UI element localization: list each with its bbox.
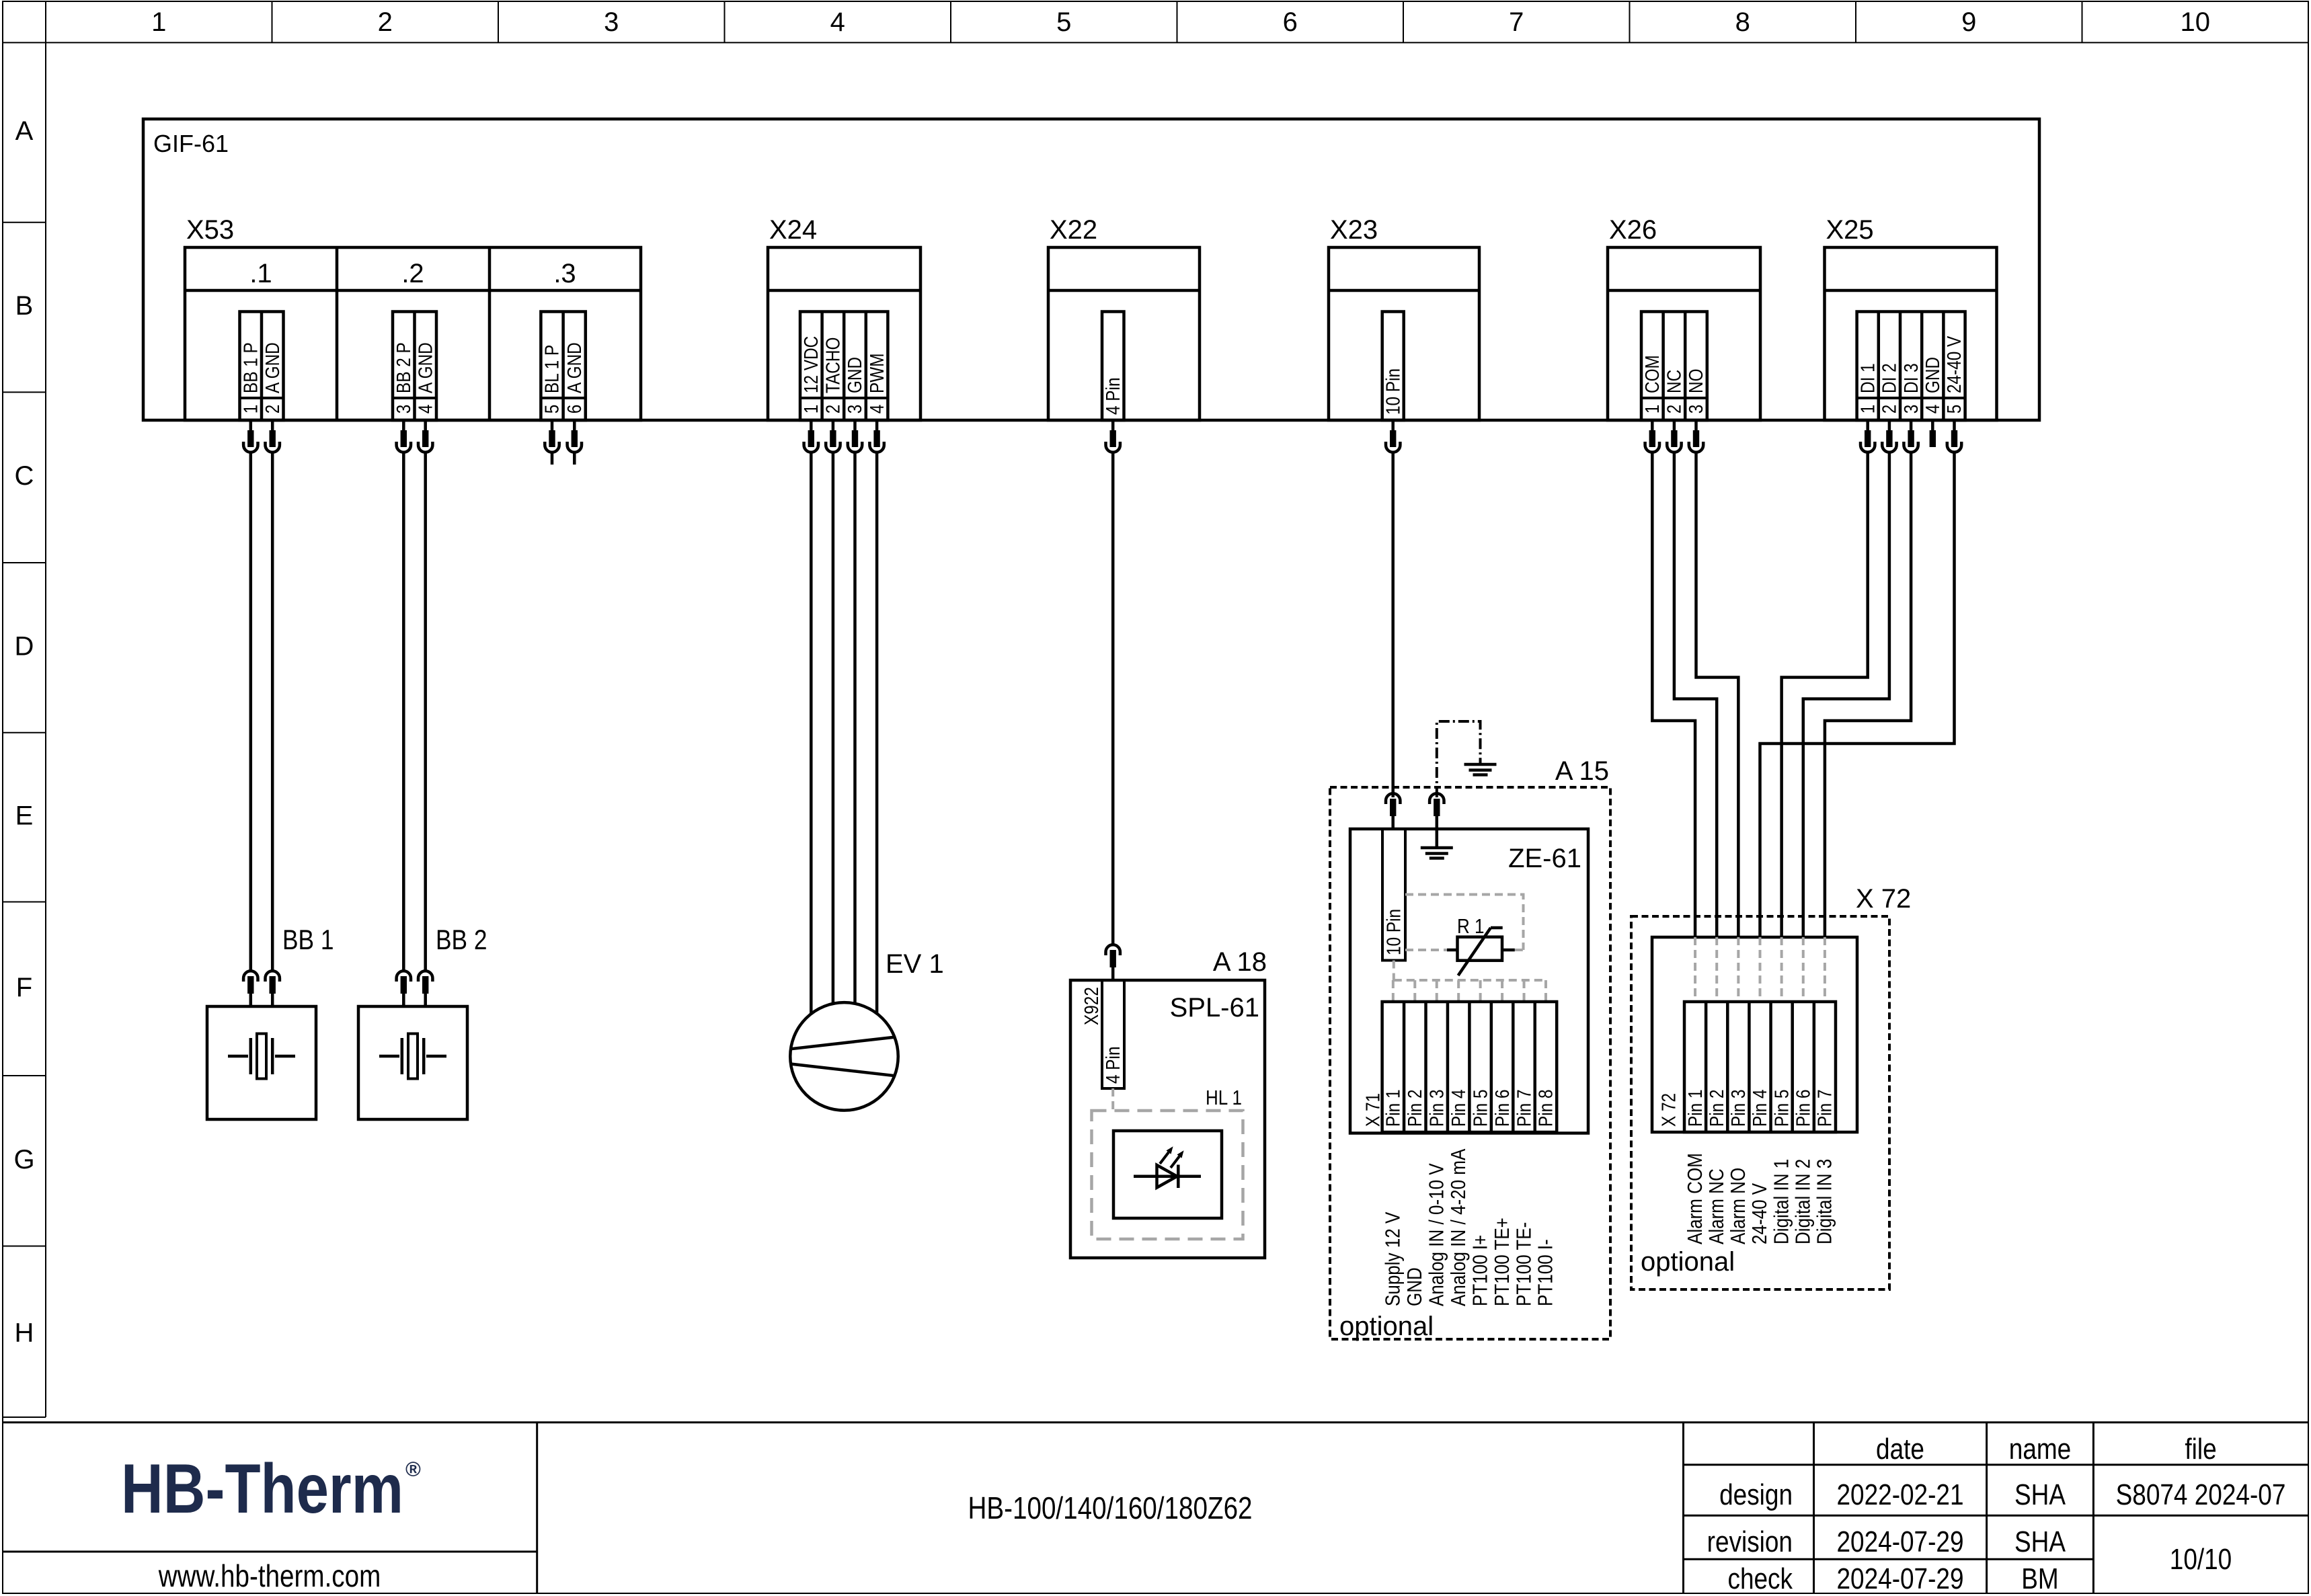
- svg-text:10: 10: [2181, 7, 2211, 37]
- svg-text:Digital IN 1: Digital IN 1: [1770, 1159, 1793, 1244]
- svg-text:Pin 4: Pin 4: [1448, 1089, 1469, 1127]
- svg-text:D: D: [15, 631, 34, 661]
- svg-text:1: 1: [800, 405, 822, 414]
- svg-text:Pin 5: Pin 5: [1770, 1089, 1792, 1127]
- svg-text:4: 4: [415, 405, 436, 414]
- svg-text:1: 1: [151, 7, 166, 37]
- svg-text:BB 2: BB 2: [436, 924, 487, 956]
- svg-text:Pin 4: Pin 4: [1749, 1089, 1770, 1127]
- svg-text:H: H: [15, 1318, 34, 1348]
- svg-text:10/10: 10/10: [2170, 1542, 2232, 1576]
- svg-text:GND: GND: [1403, 1267, 1427, 1306]
- svg-text:3: 3: [604, 7, 619, 37]
- svg-text:24-40 V: 24-40 V: [1748, 1183, 1772, 1244]
- svg-text:F: F: [16, 973, 32, 1002]
- svg-text:2: 2: [822, 405, 844, 414]
- svg-text:B: B: [15, 291, 34, 321]
- svg-text:DI 1: DI 1: [1856, 363, 1878, 393]
- svg-text:A: A: [15, 116, 34, 146]
- svg-text:2: 2: [262, 405, 283, 414]
- svg-text:5: 5: [1943, 405, 1965, 414]
- svg-text:2: 2: [378, 7, 393, 37]
- svg-text:X 72: X 72: [1658, 1093, 1680, 1127]
- svg-text:name: name: [2009, 1432, 2071, 1466]
- svg-text:2024-07-29: 2024-07-29: [1836, 1562, 1963, 1595]
- svg-text:SPL-61: SPL-61: [1170, 993, 1259, 1023]
- svg-text:12 VDC: 12 VDC: [800, 336, 822, 393]
- svg-text:C: C: [15, 461, 34, 491]
- svg-text:Digital IN 3: Digital IN 3: [1813, 1159, 1837, 1244]
- svg-text:3: 3: [1900, 405, 1922, 414]
- svg-text:Pin 7: Pin 7: [1814, 1089, 1836, 1127]
- svg-text:BM: BM: [2021, 1562, 2058, 1595]
- svg-text:3: 3: [844, 405, 865, 414]
- svg-text:G: G: [13, 1145, 34, 1174]
- svg-text:4: 4: [1922, 405, 1943, 414]
- svg-text:PT100 TE+: PT100 TE+: [1491, 1218, 1514, 1306]
- svg-text:Alarm NC: Alarm NC: [1705, 1168, 1729, 1244]
- svg-text:Alarm NO: Alarm NO: [1727, 1168, 1750, 1244]
- svg-text:2: 2: [1663, 405, 1685, 414]
- svg-text:GIF-61: GIF-61: [153, 130, 229, 157]
- svg-text:.2: .2: [401, 259, 424, 288]
- svg-text:5: 5: [541, 405, 563, 414]
- svg-text:PT100 TE-: PT100 TE-: [1512, 1222, 1536, 1306]
- svg-text:HB-100/140/160/180Z62: HB-100/140/160/180Z62: [968, 1491, 1252, 1525]
- svg-text:24-40 V: 24-40 V: [1943, 336, 1965, 393]
- svg-text:1: 1: [1856, 405, 1878, 414]
- svg-text:X922: X922: [1081, 987, 1102, 1025]
- svg-text:Digital IN 2: Digital IN 2: [1791, 1159, 1815, 1244]
- svg-text:COM: COM: [1641, 355, 1663, 393]
- svg-text:optional: optional: [1339, 1312, 1434, 1341]
- svg-text:Pin 6: Pin 6: [1793, 1089, 1814, 1127]
- svg-text:®: ®: [405, 1458, 421, 1481]
- svg-text:A 15: A 15: [1555, 756, 1609, 786]
- svg-text:A GND: A GND: [262, 342, 283, 393]
- svg-text:Alarm COM: Alarm COM: [1684, 1153, 1707, 1244]
- svg-text:X24: X24: [769, 215, 817, 245]
- svg-text:revision: revision: [1707, 1525, 1793, 1558]
- svg-text:DI 2: DI 2: [1879, 363, 1900, 393]
- svg-text:BB 1 P: BB 1 P: [240, 342, 262, 393]
- svg-text:optional: optional: [1641, 1247, 1735, 1277]
- svg-text:HB-Therm: HB-Therm: [121, 1450, 403, 1528]
- svg-text:6: 6: [563, 405, 585, 414]
- svg-text:X 71: X 71: [1362, 1093, 1384, 1127]
- svg-text:date: date: [1876, 1432, 1924, 1466]
- svg-text:E: E: [15, 801, 34, 831]
- svg-text:PT100 I-: PT100 I-: [1534, 1239, 1558, 1306]
- svg-text:HL 1: HL 1: [1206, 1086, 1242, 1110]
- svg-text:2022-02-21: 2022-02-21: [1836, 1478, 1963, 1511]
- svg-text:Pin 6: Pin 6: [1491, 1089, 1513, 1127]
- svg-text:GND: GND: [1922, 357, 1943, 393]
- svg-text:10 Pin: 10 Pin: [1382, 368, 1403, 415]
- svg-text:GND: GND: [844, 357, 865, 393]
- svg-text:X26: X26: [1609, 215, 1657, 245]
- svg-text:4 Pin: 4 Pin: [1102, 377, 1124, 415]
- svg-text:BB 1: BB 1: [282, 924, 334, 956]
- svg-text:X23: X23: [1330, 215, 1378, 245]
- svg-text:6: 6: [1283, 7, 1298, 37]
- svg-text:DI 3: DI 3: [1900, 363, 1922, 393]
- svg-text:Pin 3: Pin 3: [1727, 1089, 1749, 1127]
- svg-text:R 1: R 1: [1457, 915, 1485, 939]
- svg-text:1: 1: [1641, 405, 1663, 414]
- svg-text:Pin 1: Pin 1: [1382, 1089, 1404, 1127]
- svg-text:.1: .1: [249, 259, 272, 288]
- svg-text:2: 2: [1879, 405, 1900, 414]
- svg-text:Analog IN / 0-10 V: Analog IN / 0-10 V: [1425, 1163, 1448, 1306]
- svg-text:5: 5: [1056, 7, 1071, 37]
- svg-text:Pin 7: Pin 7: [1513, 1089, 1534, 1127]
- svg-text:NO: NO: [1685, 368, 1707, 393]
- svg-text:X25: X25: [1826, 215, 1874, 245]
- svg-text:A 18: A 18: [1213, 947, 1267, 977]
- svg-text:3: 3: [393, 405, 414, 414]
- svg-text:BB 2 P: BB 2 P: [393, 342, 414, 393]
- svg-text:X22: X22: [1050, 215, 1097, 245]
- svg-text:4: 4: [866, 405, 888, 414]
- svg-text:.3: .3: [553, 259, 576, 288]
- svg-text:www.hb-therm.com: www.hb-therm.com: [158, 1559, 381, 1593]
- svg-text:X53: X53: [186, 215, 234, 245]
- svg-text:Supply 12 V: Supply 12 V: [1381, 1212, 1405, 1306]
- svg-text:Pin 2: Pin 2: [1706, 1089, 1727, 1127]
- svg-text:ZE-61: ZE-61: [1508, 844, 1581, 873]
- svg-text:7: 7: [1509, 7, 1524, 37]
- svg-text:check: check: [1727, 1562, 1793, 1595]
- svg-text:4: 4: [830, 7, 845, 37]
- svg-text:X 72: X 72: [1856, 884, 1911, 914]
- svg-text:BL 1 P: BL 1 P: [541, 345, 563, 393]
- svg-text:A GND: A GND: [415, 342, 436, 393]
- svg-text:EV 1: EV 1: [886, 949, 944, 979]
- svg-text:Pin 3: Pin 3: [1425, 1089, 1447, 1127]
- svg-text:Pin 2: Pin 2: [1404, 1089, 1425, 1127]
- svg-text:SHA: SHA: [2014, 1525, 2066, 1558]
- svg-text:Analog IN / 4-20 mA: Analog IN / 4-20 mA: [1447, 1148, 1471, 1306]
- svg-text:Pin 8: Pin 8: [1535, 1089, 1557, 1127]
- svg-text:PWM: PWM: [866, 353, 888, 393]
- svg-text:4 Pin: 4 Pin: [1102, 1046, 1124, 1084]
- svg-text:file: file: [2185, 1432, 2216, 1466]
- svg-text:9: 9: [1961, 7, 1976, 37]
- svg-text:TACHO: TACHO: [822, 337, 844, 393]
- svg-text:design: design: [1719, 1478, 1793, 1511]
- svg-text:Pin 1: Pin 1: [1684, 1089, 1706, 1127]
- svg-text:1: 1: [240, 405, 262, 414]
- svg-text:SHA: SHA: [2014, 1478, 2066, 1511]
- svg-text:A GND: A GND: [563, 342, 585, 393]
- svg-text:S8074 2024-07: S8074 2024-07: [2116, 1478, 2286, 1511]
- svg-text:Pin 5: Pin 5: [1469, 1089, 1491, 1127]
- svg-text:8: 8: [1735, 7, 1750, 37]
- svg-text:2024-07-29: 2024-07-29: [1836, 1525, 1963, 1558]
- svg-text:PT100 I+: PT100 I+: [1468, 1235, 1492, 1306]
- svg-text:NC: NC: [1663, 370, 1685, 393]
- svg-text:3: 3: [1685, 405, 1707, 414]
- svg-text:10 Pin: 10 Pin: [1383, 909, 1405, 955]
